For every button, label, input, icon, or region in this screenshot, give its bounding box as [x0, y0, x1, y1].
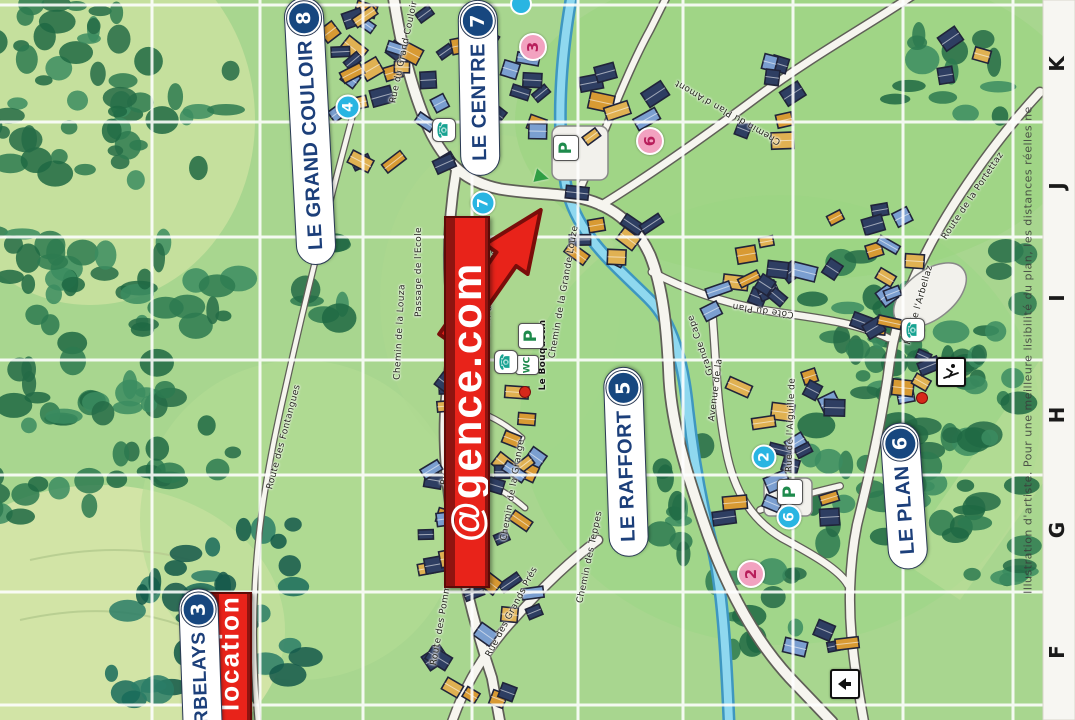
street-label: Passage de l'Ecole [414, 227, 424, 317]
village-number-badge: 7 [461, 4, 496, 39]
parking-icon: P [553, 135, 579, 161]
village-number-badge: 6 [882, 425, 918, 461]
wc-icon: WC [515, 355, 539, 375]
village-number-badge: 3 [181, 592, 216, 627]
village-name: DARBELAYS [188, 631, 214, 720]
village-name: LE PLAN [890, 465, 919, 555]
page-margin [1043, 0, 1075, 720]
phone-icon: ☎ [901, 318, 925, 342]
grid-row-letter: G [1045, 522, 1069, 538]
phone-icon: ☎ [432, 118, 456, 142]
village-label-darbelays: DARBELAYS 3 [178, 588, 224, 720]
parking-icon: P [777, 479, 803, 505]
grid-row-letter: K [1045, 56, 1069, 72]
parking-icon: P [518, 323, 544, 349]
village-map[interactable]: Route des Fontangues Rue du Grand Couloi… [0, 0, 1075, 720]
numbered-marker: 2 [737, 560, 765, 588]
numbered-marker: 2 [752, 445, 777, 470]
red-dot-marker [916, 392, 928, 404]
village-label-le-centre: LE CENTRE 7 [457, 0, 500, 176]
village-number-badge: 8 [286, 0, 322, 36]
village-name: LE CENTRE [467, 43, 492, 161]
numbered-marker: 3 [519, 33, 547, 61]
village-label-le-raffort: LE RAFFORT 5 [603, 367, 650, 558]
ski-icon [936, 357, 966, 387]
numbered-marker: 7 [471, 191, 496, 216]
numbered-marker: 6 [777, 505, 802, 530]
village-number-badge: 5 [606, 371, 641, 406]
ad-banner-primary: @gence.com [444, 216, 490, 588]
village-name: LE RAFFORT [613, 410, 641, 542]
red-dot-marker [519, 386, 531, 398]
numbered-marker: 4 [336, 95, 361, 120]
map-disclaimer: Illustration d'artiste. Pour une meilleu… [1022, 106, 1035, 594]
grid-row-letter: H [1045, 407, 1069, 424]
phone-icon: ☎ [494, 350, 518, 374]
village-name: LE GRAND COULOIR [294, 39, 328, 250]
grid-row-letter: I [1045, 294, 1069, 301]
ad-banner-text: @gence.com [444, 262, 490, 542]
grid-row-letter: J [1045, 182, 1069, 189]
direction-sign-icon [830, 669, 860, 699]
numbered-marker: 6 [636, 127, 664, 155]
grid-row-letter: F [1045, 645, 1069, 659]
